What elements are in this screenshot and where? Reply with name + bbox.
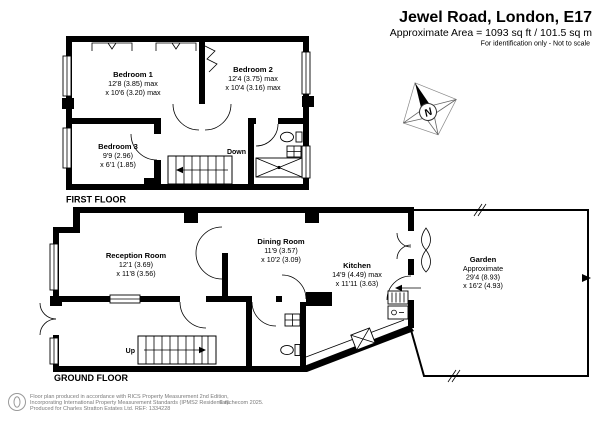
footer: Floor plan produced in accordance with R… <box>9 394 264 413</box>
kitchen-sink-icon <box>388 306 408 319</box>
north-compass-icon: N <box>390 70 466 146</box>
stairs-down-label: Down <box>227 149 246 156</box>
garden-dim3: x 16'2 (4.93) <box>463 281 503 290</box>
header: Jewel Road, London, E17 Approximate Area… <box>390 9 592 48</box>
dining-dim2: x 10'2 (3.09) <box>261 255 301 264</box>
bedroom1-name: Bedroom 1 <box>113 70 153 79</box>
footer-copyright: © nichecom 2025. <box>219 399 264 406</box>
floor-plan-svg: Jewel Road, London, E17 Approximate Area… <box>0 0 600 424</box>
ground-floor-plan: Reception Room 12'1 (3.69) x 11'8 (3.56)… <box>40 207 421 383</box>
reception-dim1: 12'1 (3.69) <box>119 260 153 269</box>
page-title: Jewel Road, London, E17 <box>399 9 592 26</box>
tree-icon <box>422 228 431 272</box>
first-floor-doors <box>131 104 278 160</box>
wc-fixtures <box>281 314 300 356</box>
alcove-marks <box>92 43 217 72</box>
floorplan-page: Jewel Road, London, E17 Approximate Area… <box>0 0 600 424</box>
bedroom3-name: Bedroom 3 <box>98 142 138 151</box>
bedroom1-dim1: 12'8 (3.85) max <box>108 79 158 88</box>
bedroom3-dim1: 9'9 (2.96) <box>103 151 133 160</box>
bedroom2-dim1: 12'4 (3.75) max <box>228 74 278 83</box>
reception-name: Reception Room <box>106 251 167 260</box>
first-floor-label: FIRST FLOOR <box>66 195 126 205</box>
footer-line3: Produced for Charles Stratton Estates Lt… <box>30 406 170 412</box>
kitchen-dim1: 14'9 (4.49) max <box>332 270 382 279</box>
ground-floor-label: GROUND FLOOR <box>54 373 128 383</box>
stairs-first-floor <box>168 156 232 184</box>
first-floor-plan: Bedroom 1 12'8 (3.85) max x 10'6 (3.20) … <box>62 36 314 205</box>
bedroom2-dim2: x 10'4 (3.16) max <box>225 83 281 92</box>
gate-arrow <box>582 274 591 282</box>
dining-name: Dining Room <box>257 237 304 246</box>
oven-icon <box>388 291 408 304</box>
kitchen-name: Kitchen <box>343 261 371 270</box>
stairs-ground-floor <box>138 336 216 364</box>
dining-dim1: 11'9 (3.57) <box>264 246 298 255</box>
disclaimer-note: For identification only - Not to scale <box>481 41 590 48</box>
garden-name: Garden <box>470 255 497 264</box>
wc-toilet-icon <box>281 345 294 354</box>
stairs-up-label: Up <box>126 348 135 355</box>
toilet-icon <box>281 132 294 142</box>
nichecom-logo-icon <box>9 394 26 411</box>
bedroom2-name: Bedroom 2 <box>233 65 273 74</box>
reception-dim2: x 11'8 (3.56) <box>116 269 155 278</box>
approximate-area: Approximate Area = 1093 sq ft / 101.5 sq… <box>390 27 592 39</box>
bedroom3-dim2: x 6'1 (1.85) <box>100 160 136 169</box>
kitchen-dim2: x 11'11 (3.63) <box>336 279 379 288</box>
garden-area: Garden Approximate 29'4 (8.93) x 16'2 (4… <box>411 204 591 382</box>
bedroom1-dim2: x 10'6 (3.20) max <box>105 88 161 97</box>
bathroom-fixtures <box>256 132 302 177</box>
